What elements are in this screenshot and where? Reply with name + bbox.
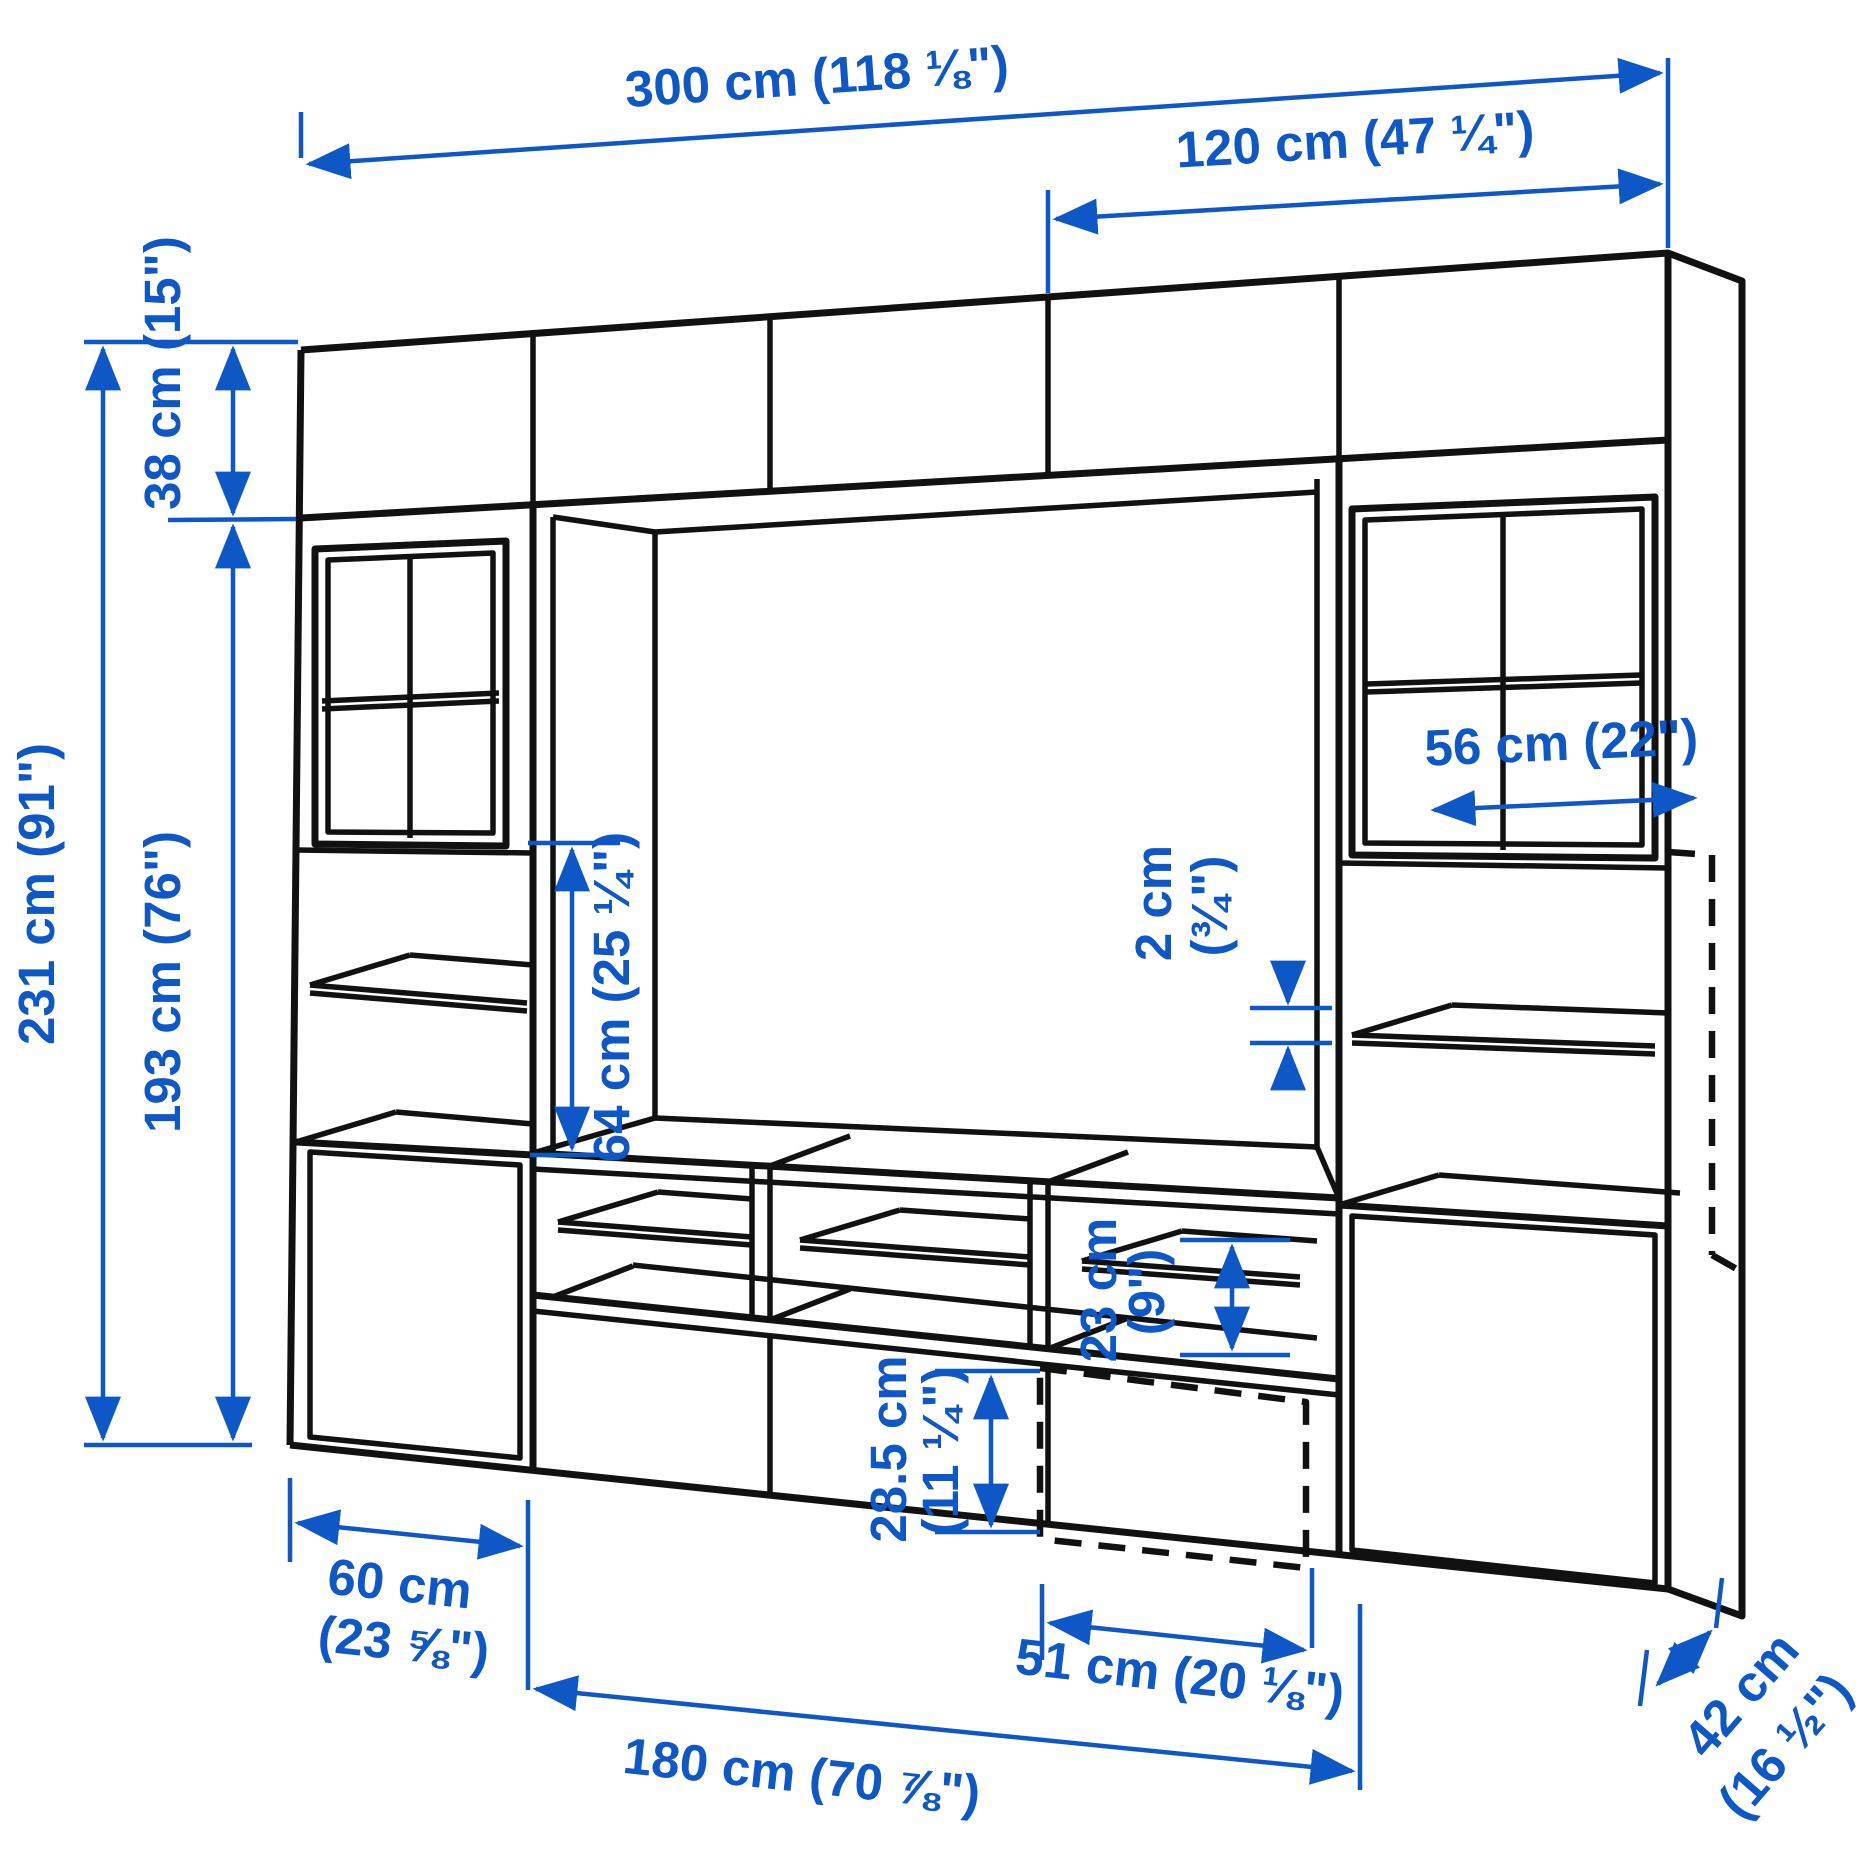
dim-line-depth bbox=[1658, 1632, 1710, 1684]
dim-column-height-label: 193 cm (76") bbox=[134, 831, 191, 1133]
dim-drawer-width-label: 51 cm (20 ⅛") bbox=[1013, 1628, 1348, 1722]
dim-overall-width-label: 300 cm (118 ⅛") bbox=[623, 35, 1010, 118]
dim-total-height-label: 231 cm (91") bbox=[8, 743, 65, 1045]
right-lower-cabinet-top-corner bbox=[1339, 1175, 1439, 1205]
wall-unit-drawing bbox=[290, 253, 1742, 1616]
right-mid-panel bbox=[1339, 863, 1668, 868]
bench-divider-foot bbox=[770, 1289, 850, 1320]
left-mid-panel bbox=[296, 850, 533, 853]
left-lower-cabinet-top-back bbox=[396, 1112, 533, 1124]
hidden-depth-outline bbox=[1668, 852, 1742, 1272]
dim-line-side-unit-width bbox=[298, 1523, 520, 1546]
left-lower-cabinet-top-corner bbox=[296, 1112, 396, 1142]
left-open-shelf bbox=[310, 955, 533, 1011]
dim-shelf-thickness-in: (¾") bbox=[1181, 856, 1238, 957]
bench-shelf bbox=[800, 1210, 1030, 1265]
dim-top-cabinet-height-label: 38 cm (15") bbox=[134, 236, 191, 510]
left-glass-cabinet bbox=[315, 541, 506, 846]
opening-underside-left-edge bbox=[553, 517, 655, 532]
tick-line bbox=[1716, 1578, 1722, 1628]
furniture-dimension-diagram: 300 cm (118 ⅛") 120 cm (47 ¼") 231 cm (9… bbox=[0, 0, 1860, 1860]
dim-drawer-height-cm: 28.5 cm bbox=[860, 1355, 917, 1542]
dim-bench-width-label: 180 cm (70 ⅞") bbox=[621, 1727, 984, 1822]
dim-shelf-thickness-cm: 2 cm bbox=[1125, 845, 1182, 961]
bench-shelf bbox=[558, 1192, 752, 1245]
opening-underside-back-edge bbox=[655, 492, 1317, 532]
bench-divider-foot bbox=[1048, 1152, 1128, 1182]
dim-upper-right-width-label: 120 cm (47 ¼") bbox=[1174, 100, 1535, 178]
dim-interior-width-label: 56 cm (22") bbox=[1423, 708, 1699, 776]
bench-rail-left-foot bbox=[553, 1266, 633, 1297]
tick-line bbox=[168, 519, 296, 520]
right-lower-door bbox=[1352, 1216, 1655, 1583]
dim-shelf-spacing-in: (9") bbox=[1118, 1249, 1175, 1336]
dim-opening-height-label: 64 cm (25 ¼") bbox=[583, 832, 640, 1162]
carcass-outline bbox=[301, 253, 1742, 1616]
bench-rail-top bbox=[533, 1295, 1339, 1379]
tick-line bbox=[1640, 1650, 1647, 1706]
right-lower-cabinet-top-back bbox=[1439, 1175, 1680, 1193]
opening-back-bottom-edge bbox=[655, 1118, 1317, 1147]
dim-line-upper-right-width bbox=[1056, 184, 1660, 219]
right-open-shelf bbox=[1352, 1005, 1668, 1054]
diagram-canvas: 300 cm (118 ⅛") 120 cm (47 ¼") 231 cm (9… bbox=[0, 0, 1860, 1860]
front-bottom-edge bbox=[290, 1445, 1668, 1589]
left-lower-door bbox=[310, 1152, 520, 1458]
bench-divider-foot bbox=[770, 1136, 850, 1166]
dim-drawer-height-in: (11 ¼") bbox=[912, 1367, 969, 1536]
bench-rail-back-edge bbox=[633, 1265, 1317, 1338]
front-left-edge bbox=[290, 350, 301, 1445]
